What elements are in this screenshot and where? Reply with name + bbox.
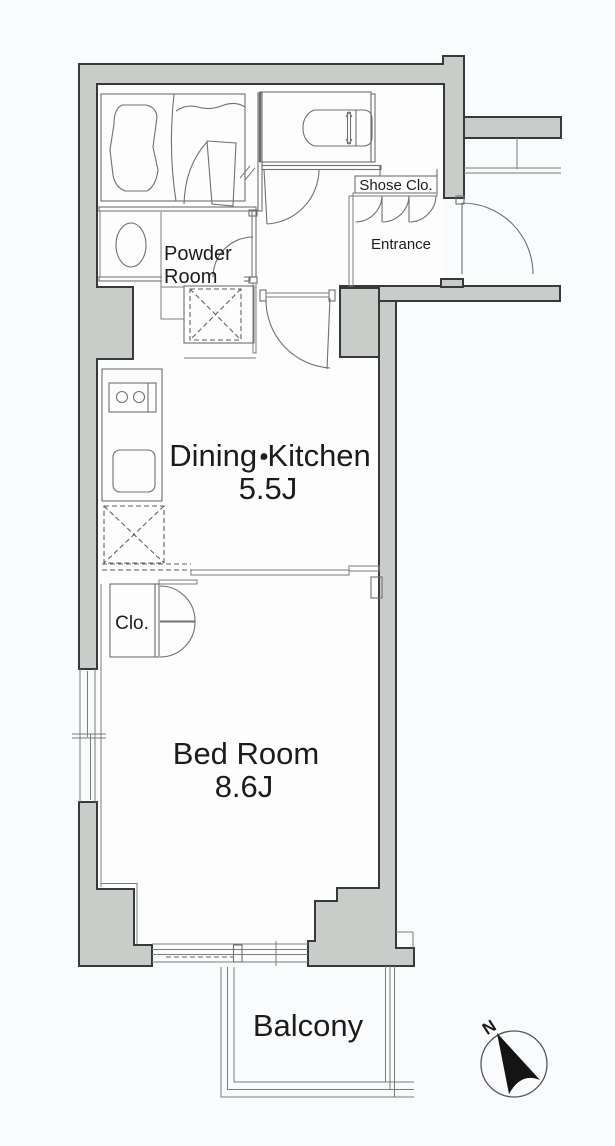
svg-text:Entrance: Entrance	[371, 236, 431, 253]
svg-text:Bed Room: Bed Room	[173, 736, 319, 771]
svg-text:Clo.: Clo.	[115, 613, 149, 634]
svg-text:Balcony: Balcony	[253, 1008, 364, 1043]
svg-text:Dining·Kitchen: Dining·Kitchen	[169, 438, 371, 473]
svg-text:Shose Clo.: Shose Clo.	[359, 177, 432, 194]
svg-text:8.6J: 8.6J	[215, 769, 274, 804]
svg-text:Room: Room	[164, 266, 217, 288]
svg-text:5.5J: 5.5J	[239, 471, 298, 506]
svg-text:Powder: Powder	[164, 243, 232, 265]
